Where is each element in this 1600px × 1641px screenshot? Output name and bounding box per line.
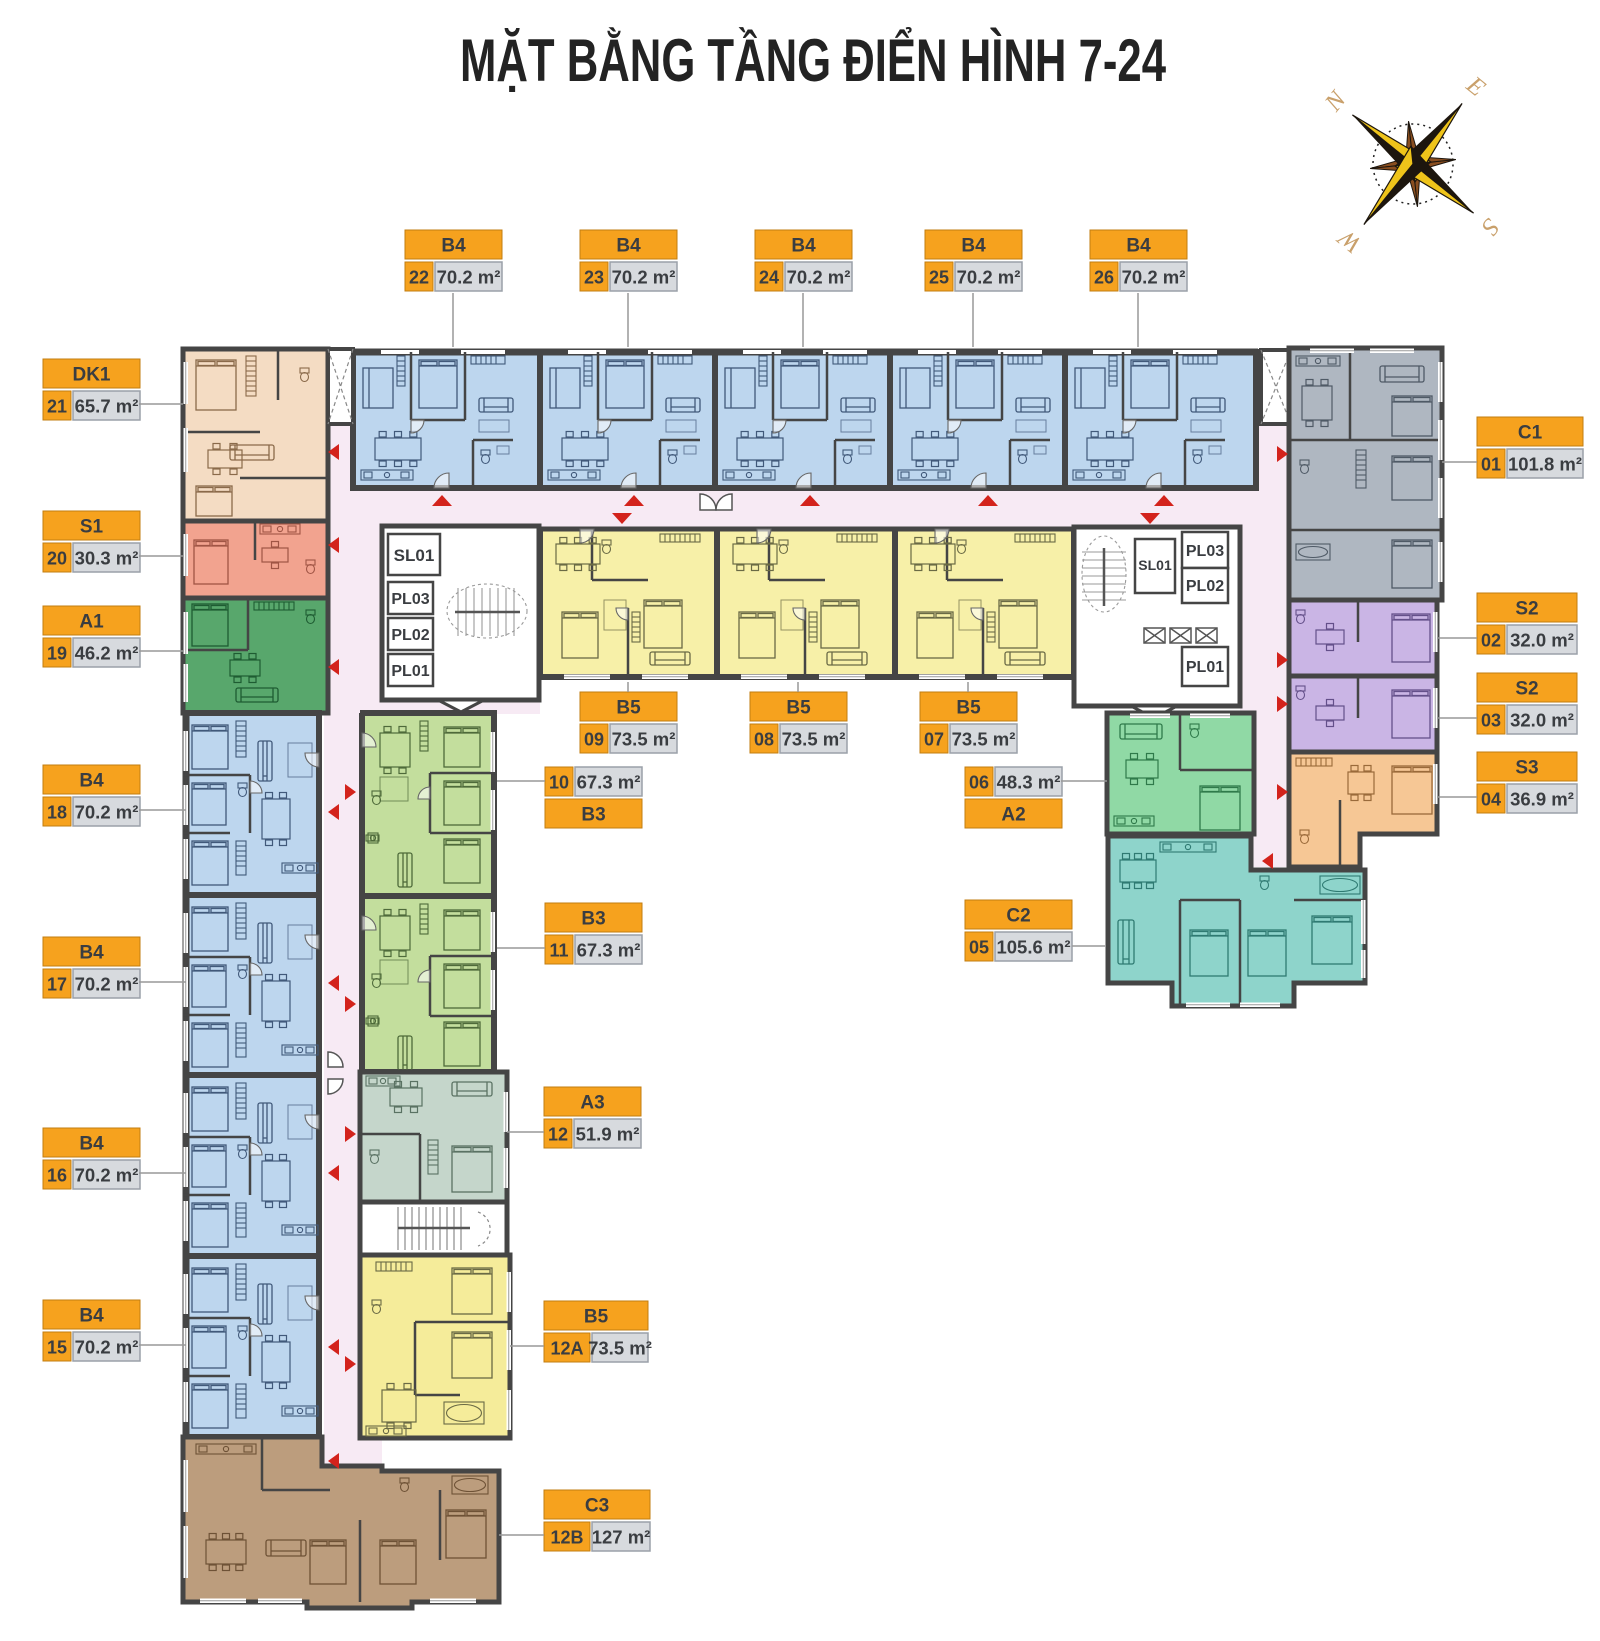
svg-text:S3: S3 [1515, 758, 1538, 779]
svg-text:67.3 m²: 67.3 m² [577, 940, 641, 961]
svg-text:12: 12 [548, 1125, 568, 1145]
svg-text:30.3 m²: 30.3 m² [75, 548, 139, 569]
svg-text:70.2 m²: 70.2 m² [75, 1337, 139, 1358]
svg-text:C3: C3 [585, 1496, 609, 1517]
svg-text:B4: B4 [79, 943, 104, 964]
svg-text:A2: A2 [1001, 805, 1025, 826]
svg-text:SL01: SL01 [394, 546, 435, 565]
svg-text:19: 19 [47, 644, 67, 664]
svg-text:B5: B5 [616, 698, 641, 719]
svg-text:B3: B3 [581, 909, 605, 930]
svg-text:23: 23 [584, 268, 604, 288]
svg-text:PL01: PL01 [391, 663, 429, 680]
svg-text:20: 20 [47, 549, 67, 569]
svg-text:73.5 m²: 73.5 m² [588, 1338, 652, 1359]
svg-text:36.9 m²: 36.9 m² [1510, 789, 1574, 810]
svg-text:S1: S1 [80, 517, 104, 538]
svg-text:70.2 m²: 70.2 m² [1122, 267, 1186, 288]
svg-text:PL03: PL03 [1186, 543, 1224, 560]
svg-text:16: 16 [47, 1166, 67, 1186]
svg-text:70.2 m²: 70.2 m² [957, 267, 1021, 288]
svg-text:09: 09 [584, 730, 604, 750]
svg-text:PL02: PL02 [1186, 578, 1224, 595]
svg-text:73.5 m²: 73.5 m² [782, 729, 846, 750]
svg-text:25: 25 [929, 268, 949, 288]
svg-text:17: 17 [47, 975, 67, 995]
svg-text:B4: B4 [1126, 236, 1151, 257]
svg-text:B4: B4 [791, 236, 816, 257]
svg-text:26: 26 [1094, 268, 1114, 288]
svg-text:70.2 m²: 70.2 m² [75, 974, 139, 995]
svg-text:70.2 m²: 70.2 m² [437, 267, 501, 288]
svg-text:PL02: PL02 [391, 627, 429, 644]
svg-text:S2: S2 [1515, 599, 1538, 620]
svg-text:B5: B5 [956, 698, 981, 719]
svg-text:48.3 m²: 48.3 m² [997, 772, 1061, 793]
svg-text:12A: 12A [550, 1339, 583, 1359]
svg-text:05: 05 [969, 938, 989, 958]
svg-text:B4: B4 [79, 1134, 104, 1155]
svg-text:B5: B5 [786, 698, 811, 719]
svg-text:PL03: PL03 [391, 591, 429, 608]
svg-text:12B: 12B [550, 1528, 583, 1548]
svg-text:10: 10 [549, 773, 569, 793]
svg-text:B4: B4 [616, 236, 641, 257]
svg-text:101.8 m²: 101.8 m² [1508, 454, 1582, 475]
svg-text:B4: B4 [79, 1306, 104, 1327]
svg-text:B4: B4 [961, 236, 986, 257]
svg-text:A1: A1 [79, 612, 104, 633]
svg-text:C2: C2 [1006, 906, 1030, 927]
svg-text:PL01: PL01 [1186, 659, 1224, 676]
svg-text:B4: B4 [441, 236, 466, 257]
svg-text:46.2 m²: 46.2 m² [75, 643, 139, 664]
svg-text:04: 04 [1481, 790, 1501, 810]
svg-text:32.0 m²: 32.0 m² [1510, 710, 1574, 731]
svg-text:08: 08 [754, 730, 774, 750]
svg-text:105.6 m²: 105.6 m² [996, 937, 1070, 958]
svg-text:B3: B3 [581, 805, 605, 826]
svg-text:51.9 m²: 51.9 m² [576, 1124, 640, 1145]
svg-text:73.5 m²: 73.5 m² [612, 729, 676, 750]
svg-text:01: 01 [1481, 455, 1501, 475]
svg-text:03: 03 [1481, 711, 1501, 731]
svg-text:70.2 m²: 70.2 m² [787, 267, 851, 288]
svg-text:32.0 m²: 32.0 m² [1510, 630, 1574, 651]
svg-text:S2: S2 [1515, 679, 1538, 700]
svg-text:70.2 m²: 70.2 m² [612, 267, 676, 288]
svg-text:DK1: DK1 [72, 365, 110, 386]
svg-text:65.7 m²: 65.7 m² [75, 396, 139, 417]
svg-text:70.2 m²: 70.2 m² [75, 1165, 139, 1186]
svg-text:73.5 m²: 73.5 m² [952, 729, 1016, 750]
svg-text:MẶT BẰNG TẦNG ĐIỂN HÌNH 7-24: MẶT BẰNG TẦNG ĐIỂN HÌNH 7-24 [460, 27, 1166, 94]
svg-text:02: 02 [1481, 631, 1501, 651]
svg-text:67.3 m²: 67.3 m² [577, 772, 641, 793]
svg-text:B5: B5 [584, 1307, 609, 1328]
svg-text:127 m²: 127 m² [592, 1527, 651, 1548]
svg-text:A3: A3 [580, 1093, 604, 1114]
svg-text:70.2 m²: 70.2 m² [75, 802, 139, 823]
svg-text:21: 21 [47, 397, 67, 417]
svg-text:06: 06 [969, 773, 989, 793]
svg-text:15: 15 [47, 1338, 67, 1358]
svg-text:24: 24 [759, 268, 779, 288]
svg-text:11: 11 [549, 941, 568, 961]
svg-text:SL01: SL01 [1138, 557, 1172, 573]
svg-text:B4: B4 [79, 771, 104, 792]
svg-text:22: 22 [409, 268, 429, 288]
svg-text:07: 07 [924, 730, 944, 750]
svg-text:C1: C1 [1518, 423, 1543, 444]
svg-text:18: 18 [47, 803, 67, 823]
